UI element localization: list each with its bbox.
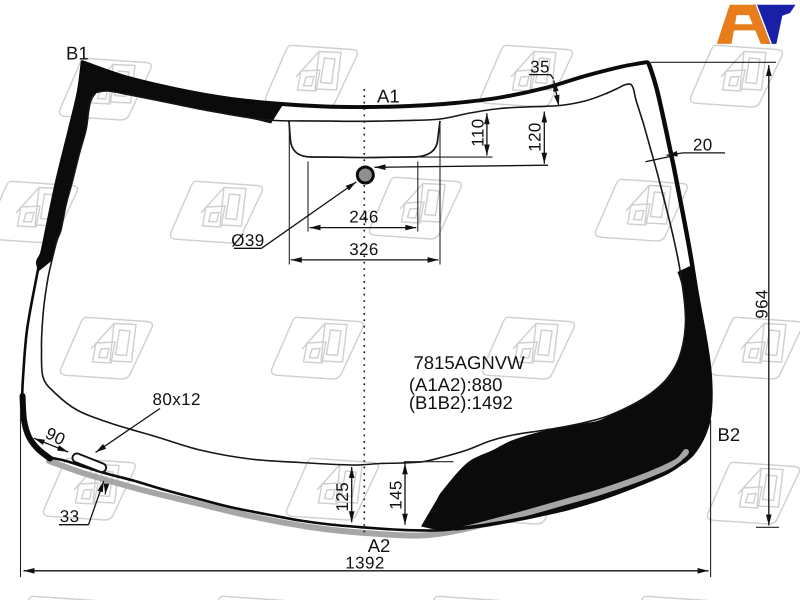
- svg-text:145: 145: [386, 480, 405, 510]
- svg-text:35: 35: [530, 58, 550, 77]
- svg-text:Ø39: Ø39: [231, 231, 264, 250]
- svg-text:A1: A1: [377, 86, 400, 107]
- svg-text:120: 120: [526, 122, 545, 152]
- svg-text:20: 20: [693, 136, 713, 155]
- svg-text:B1: B1: [66, 43, 89, 64]
- svg-text:110: 110: [468, 118, 487, 146]
- svg-text:7815AGNVW: 7815AGNVW: [414, 352, 526, 373]
- svg-text:B2: B2: [718, 424, 741, 445]
- svg-text:33: 33: [60, 507, 80, 526]
- svg-text:964: 964: [753, 289, 772, 319]
- svg-text:A2: A2: [368, 535, 391, 556]
- svg-text:90: 90: [42, 424, 68, 450]
- svg-text:(B1B2):1492: (B1B2):1492: [409, 392, 513, 413]
- svg-text:1392: 1392: [345, 554, 384, 573]
- svg-text:326: 326: [349, 240, 379, 259]
- svg-text:125: 125: [333, 482, 352, 512]
- svg-text:80x12: 80x12: [153, 390, 201, 409]
- svg-text:246: 246: [349, 208, 379, 227]
